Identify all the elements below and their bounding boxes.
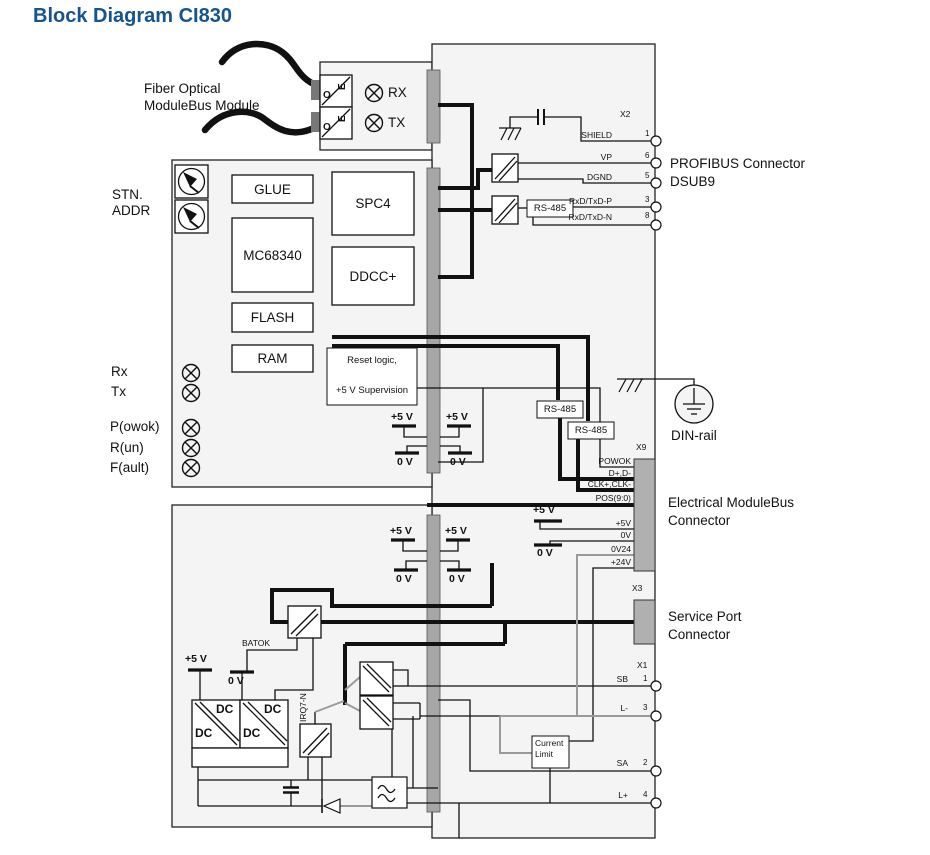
- pin-powok-label: POWOK: [559, 456, 631, 466]
- tx-label: TX: [388, 115, 405, 131]
- pin-num: 3: [643, 703, 647, 712]
- led-tx-label: Tx: [111, 384, 126, 400]
- fiber-cable-icon: [205, 44, 318, 132]
- fiber-plug-icon: [311, 80, 320, 100]
- pin-shield-label: SHIELD: [540, 130, 612, 140]
- pin-vp-label: VP: [540, 152, 612, 162]
- zero-label: 0 V: [396, 573, 412, 585]
- x3-label: X3: [632, 584, 642, 594]
- dc-label: DC: [216, 703, 233, 717]
- pin-num: 2: [643, 758, 647, 767]
- pin-24v-label: +24V: [559, 557, 631, 567]
- x2-label: X2: [620, 110, 630, 120]
- current-limit-label2: Limit: [535, 750, 553, 760]
- zero-label: 0 V: [449, 573, 465, 585]
- plus5-label: +5 V: [445, 525, 467, 537]
- pin-d-label: D+,D-: [559, 468, 631, 478]
- irq7n-label: IRQ7-N: [299, 693, 309, 722]
- x3-connector-block[interactable]: [634, 600, 655, 644]
- pin-clk-label: CLK+,CLK-: [559, 479, 631, 489]
- block-diagram-ci830: Block Diagram CI830 Fiber Optical Module…: [0, 0, 930, 855]
- x9-connector-block[interactable]: [634, 459, 655, 571]
- din-rail-earth-icon: [675, 385, 713, 423]
- pin-num: 1: [645, 129, 649, 138]
- dc-label: DC: [243, 727, 260, 741]
- ddcc-label: DDCC+: [332, 247, 414, 305]
- current-limit-label1: Current: [535, 739, 563, 749]
- pin-num: 4: [643, 790, 647, 799]
- din-rail-label: DIN-rail: [671, 428, 717, 444]
- modulebus-connector-label2: Connector: [668, 513, 730, 529]
- profibus-connector-label1: PROFIBUS Connector: [670, 156, 805, 172]
- rotary-switch-icon[interactable]: [175, 165, 208, 198]
- fiber-label-line2: ModuleBus Module: [144, 98, 260, 114]
- oe-e-label: E: [337, 115, 349, 122]
- zero-label: 0 V: [537, 547, 553, 559]
- emi-filter-icon: [372, 777, 407, 808]
- plus5-label: +5 V: [446, 411, 468, 423]
- pin-num: 5: [645, 171, 649, 180]
- flash-label: FLASH: [232, 303, 313, 332]
- led-run-label: R(un): [110, 440, 144, 456]
- pin-pos-label: POS(9:0): [559, 493, 631, 503]
- pin-sa-label: SA: [556, 758, 628, 768]
- glue-label: GLUE: [232, 175, 313, 203]
- ram-label: RAM: [232, 345, 313, 372]
- zero-label: 0 V: [450, 456, 466, 468]
- rotary-switch-icon[interactable]: [175, 200, 208, 233]
- rs485-label: RS-485: [537, 401, 583, 418]
- x1-label: X1: [637, 661, 647, 671]
- pin-num: 1: [643, 674, 647, 683]
- addr-label: ADDR: [112, 203, 150, 219]
- pin-lplus-label: L+: [556, 790, 628, 800]
- modulebus-connector-label1: Electrical ModuleBus: [668, 495, 794, 511]
- service-port-label2: Connector: [668, 627, 730, 643]
- batok-label: BATOK: [242, 639, 270, 649]
- plus5-label: +5 V: [185, 653, 207, 665]
- plus5-label: +5 V: [533, 504, 555, 516]
- led-fault-label: F(ault): [110, 460, 149, 476]
- bus-bar: [427, 70, 440, 812]
- pin-5v-label: +5V: [559, 518, 631, 528]
- fiber-label-line1: Fiber Optical: [144, 81, 221, 97]
- oe-o-label: O: [323, 90, 331, 102]
- plus5-label: +5 V: [390, 525, 412, 537]
- dc-label: DC: [264, 703, 281, 717]
- mc68340-label: MC68340: [232, 218, 313, 292]
- rs485-label: RS-485: [568, 422, 614, 439]
- spc4-label: SPC4: [332, 172, 414, 235]
- reset-logic-label1: Reset logic,: [327, 352, 417, 368]
- oe-e-label: E: [337, 83, 349, 90]
- pin-lminus-label: L-: [556, 703, 628, 713]
- rx-label: RX: [388, 85, 407, 101]
- zero-label: 0 V: [228, 675, 244, 687]
- x9-label: X9: [636, 443, 646, 453]
- fiber-plug-icon: [311, 112, 320, 132]
- pin-sb-label: SB: [556, 674, 628, 684]
- reset-logic-label2: +5 V Supervision: [327, 382, 417, 398]
- pin-num: 8: [645, 211, 649, 220]
- rs485-label: RS-485: [527, 200, 573, 217]
- zero-label: 0 V: [397, 456, 413, 468]
- plus5-label: +5 V: [391, 411, 413, 423]
- oe-o-label: O: [323, 122, 331, 134]
- pin-0v24-label: 0V24: [559, 544, 631, 554]
- led-powok-label: P(owok): [110, 419, 160, 435]
- pin-num: 3: [645, 195, 649, 204]
- pin-dgnd-label: DGND: [540, 172, 612, 182]
- page-title: Block Diagram CI830: [33, 5, 232, 28]
- service-port-label1: Service Port: [668, 609, 742, 625]
- pin-0v-label: 0V: [559, 530, 631, 540]
- profibus-connector-label2: DSUB9: [670, 174, 715, 190]
- led-rx-label: Rx: [111, 364, 128, 380]
- dc-label: DC: [195, 727, 212, 741]
- pin-num: 6: [645, 151, 649, 160]
- stn-label: STN.: [112, 187, 143, 203]
